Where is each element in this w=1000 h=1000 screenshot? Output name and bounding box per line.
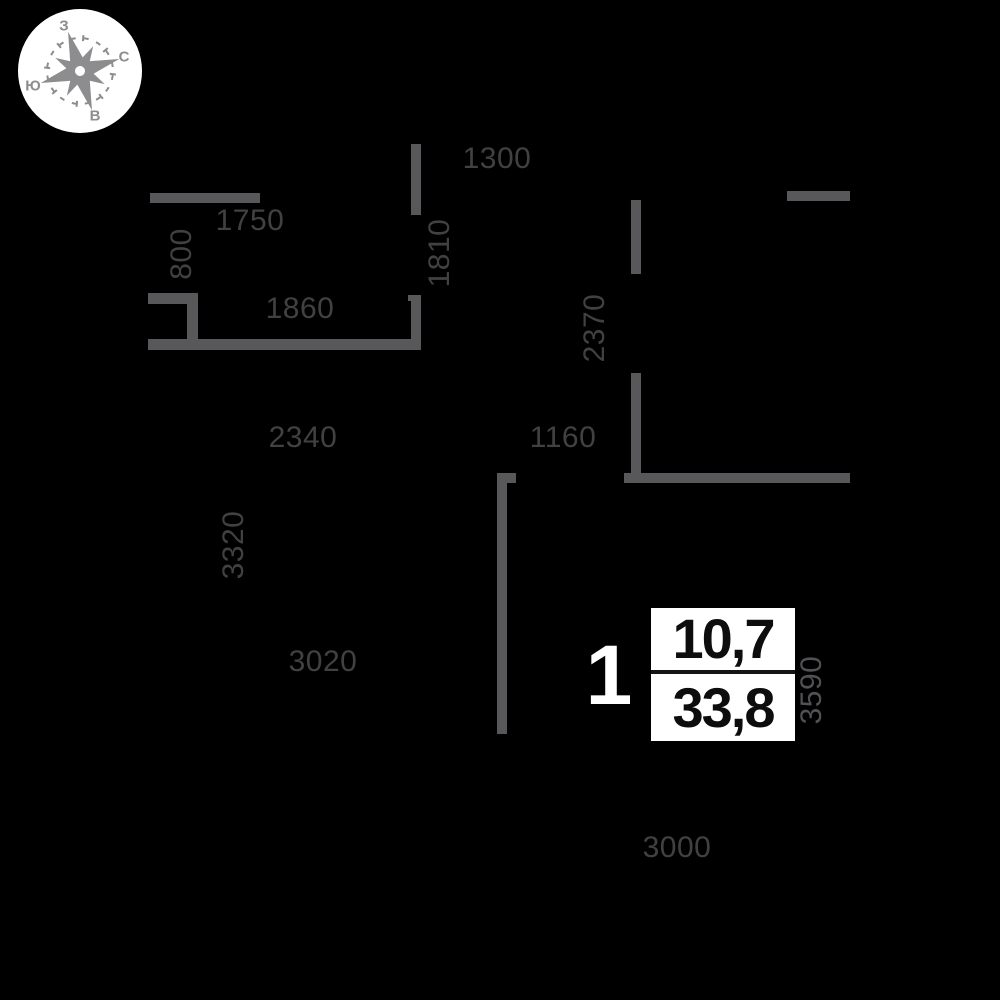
apartment-area-box: 10,7 33,8 bbox=[651, 608, 795, 741]
wall-segment bbox=[411, 144, 421, 215]
compass-letter-west: З bbox=[59, 18, 68, 35]
wall-segment bbox=[150, 193, 260, 203]
compass-letter-south: Ю bbox=[25, 78, 40, 95]
wall-segment bbox=[624, 473, 850, 483]
dimension-label-1750: 1750 bbox=[216, 206, 285, 236]
wall-segment bbox=[497, 473, 507, 734]
wall-segment bbox=[787, 191, 850, 201]
compass-letter-north: С bbox=[119, 49, 130, 66]
apartment-rooms-count: 1 bbox=[586, 633, 633, 717]
dimension-label-3320: 3320 bbox=[219, 511, 249, 580]
dimension-label-3590: 3590 bbox=[797, 656, 827, 725]
compass-rose-icon: З С Ю В bbox=[0, 0, 160, 140]
wall-segment bbox=[507, 473, 516, 483]
wall-segment bbox=[631, 373, 641, 478]
dimension-label-1300: 1300 bbox=[463, 144, 532, 174]
dimension-label-1160: 1160 bbox=[530, 423, 597, 453]
wall-segment bbox=[148, 339, 421, 350]
living-area-value: 10,7 bbox=[651, 608, 795, 670]
dimension-label-1860: 1860 bbox=[266, 294, 335, 324]
wall-segment bbox=[631, 200, 641, 274]
floorplan-canvas: З С Ю В 17508001300181018602370234011603… bbox=[0, 0, 1000, 1000]
dimension-label-800: 800 bbox=[167, 228, 197, 280]
dimension-label-1810: 1810 bbox=[425, 219, 455, 288]
dimension-label-3000: 3000 bbox=[643, 833, 712, 863]
dimension-label-2340: 2340 bbox=[269, 423, 338, 453]
compass-letter-east: В bbox=[90, 108, 101, 125]
dimension-label-3020: 3020 bbox=[289, 647, 358, 677]
dimension-label-2370: 2370 bbox=[580, 294, 610, 363]
wall-segment bbox=[411, 295, 421, 350]
total-area-value: 33,8 bbox=[651, 674, 795, 741]
